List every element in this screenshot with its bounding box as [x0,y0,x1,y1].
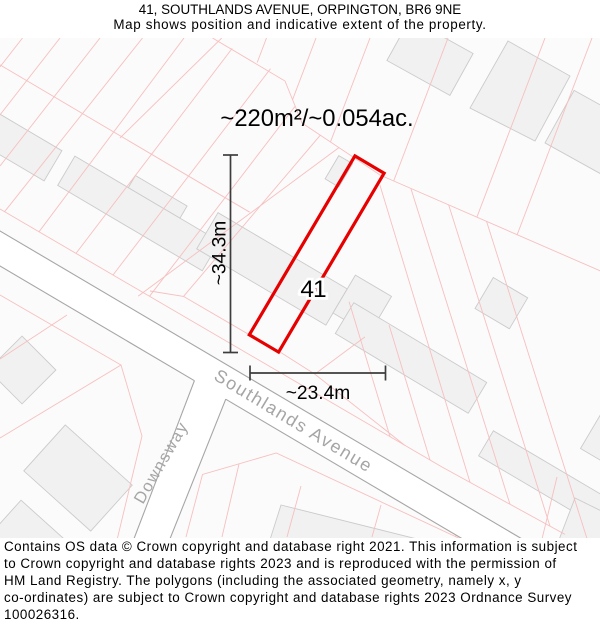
svg-text:~23.4m: ~23.4m [286,383,351,404]
svg-text:~220m²/~0.054ac.: ~220m²/~0.054ac. [220,105,413,132]
svg-text:~34.3m: ~34.3m [210,221,231,286]
svg-text:41: 41 [300,276,326,303]
